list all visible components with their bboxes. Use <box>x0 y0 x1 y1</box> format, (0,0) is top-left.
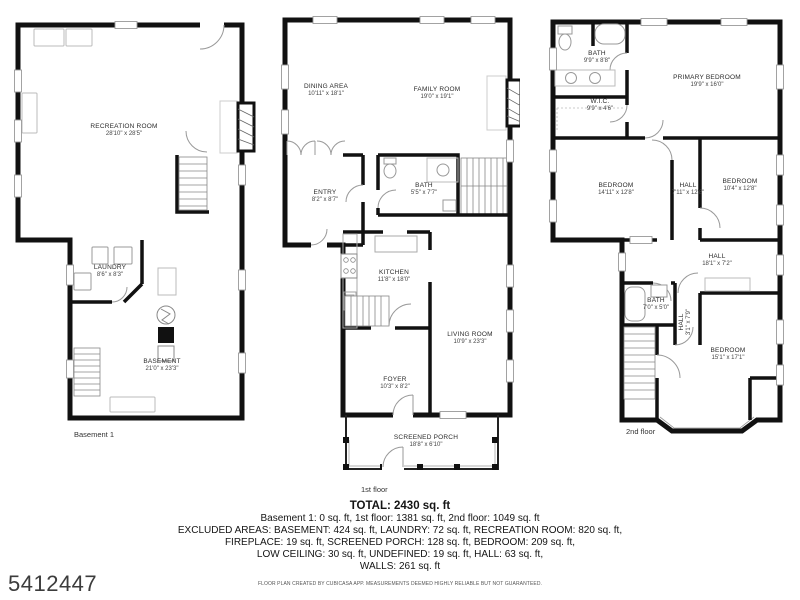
door-gap <box>200 20 224 30</box>
room-label-bedroom-left: BEDROOM 14'11" x 12'8" <box>598 182 634 198</box>
room-dims: 18'1" x 7'2" <box>702 261 732 269</box>
room-name: BEDROOM <box>711 347 746 355</box>
room-dims: 15'1" x 17'1" <box>711 355 746 363</box>
room-dims: 21'0" x 23'3" <box>143 366 180 374</box>
room-dims: 28'10" x 28'5" <box>90 131 157 139</box>
room-label-family-room: FAMILY ROOM 19'0" x 19'1" <box>414 86 461 102</box>
bathtub-icon <box>595 24 625 44</box>
room-label-entry: ENTRY 8'2" x 8'7" <box>312 189 338 205</box>
room-name: FOYER <box>380 376 410 384</box>
room-dims: 10'9" x 23'3" <box>447 339 493 347</box>
room-dims: 10'3" x 8'2" <box>380 384 410 392</box>
room-name: FAMILY ROOM <box>414 86 461 94</box>
room-name: LAUNDRY <box>94 264 126 272</box>
basement-floorplan <box>10 15 260 445</box>
room-label-bedroom-bottom: BEDROOM 15'1" x 17'1" <box>711 347 746 363</box>
second-floor-outer-walls <box>553 22 780 431</box>
room-name: KITCHEN <box>378 269 410 277</box>
room-name: SCREENED PORCH <box>394 434 458 442</box>
basement-outer-walls <box>18 25 242 418</box>
room-label-primary-bedroom: PRIMARY BEDROOM 19'9" x 16'0" <box>673 74 741 90</box>
room-label-bath-second: BATH 9'9" x 8'8" <box>584 50 610 66</box>
room-dims: 8'6" x 8'3" <box>94 272 126 280</box>
room-dims: 9'9" x 4'6" <box>587 106 613 114</box>
floorplan-page: RECREATION ROOM 28'10" x 28'5" LAUNDRY 8… <box>0 0 800 600</box>
summary-line: FIREPLACE: 19 sq. ft, SCREENED PORCH: 12… <box>0 537 800 549</box>
room-name: BEDROOM <box>723 178 758 186</box>
room-name: HALL <box>702 253 732 261</box>
floor-label-second: 2nd floor <box>626 427 655 436</box>
room-label-laundry: LAUNDRY 8'6" x 8'3" <box>94 264 126 280</box>
summary-line: WALLS: 261 sq. ft <box>0 561 800 573</box>
stove-icon <box>341 254 357 278</box>
room-name: BASEMENT <box>143 358 180 366</box>
room-name: LIVING ROOM <box>447 331 493 339</box>
room-name: BATH <box>411 182 437 190</box>
room-label-dining-area: DINING AREA 10'11" x 18'1" <box>304 83 348 99</box>
room-name: DINING AREA <box>304 83 348 91</box>
room-name: PRIMARY BEDROOM <box>673 74 741 82</box>
room-name: RECREATION ROOM <box>90 123 157 131</box>
room-label-recreation-room: RECREATION ROOM 28'10" x 28'5" <box>90 123 157 139</box>
toilet-icon <box>558 26 572 50</box>
stairs-icon <box>458 158 510 215</box>
room-dims: 10'11" x 18'1" <box>304 91 348 99</box>
room-dims: 19'9" x 16'0" <box>673 82 741 90</box>
room-name: BATH <box>643 297 669 305</box>
room-label-hall-mid: HALL 7'11" x 12'8" <box>672 182 704 198</box>
room-dims: 7'0" x 5'0" <box>643 305 669 313</box>
room-label-basement: BASEMENT 21'0" x 23'3" <box>143 358 180 374</box>
room-label-living-room: LIVING ROOM 10'9" x 23'3" <box>447 331 493 347</box>
room-name: ENTRY <box>312 189 338 197</box>
room-label-kitchen: KITCHEN 11'8" x 18'0" <box>378 269 410 285</box>
room-label-bedroom-right: BEDROOM 10'4" x 12'8" <box>723 178 758 194</box>
area-summary: TOTAL: 2430 sq. ft Basement 1: 0 sq. ft,… <box>0 500 800 573</box>
room-dims: 3'1" x 7'9" <box>686 309 694 335</box>
room-dims: 5'5" x 7'7" <box>411 190 437 198</box>
room-name: HALL <box>672 182 704 190</box>
room-label-hall-upper: HALL 18'1" x 7'2" <box>702 253 732 269</box>
room-dims: 8'2" x 8'7" <box>312 197 338 205</box>
room-name: W.I.C. <box>587 98 613 106</box>
room-label-foyer: FOYER 10'3" x 8'2" <box>380 376 410 392</box>
summary-line: EXCLUDED AREAS: BASEMENT: 424 sq. ft, LA… <box>0 525 800 537</box>
room-label-wic: W.I.C. 9'9" x 4'6" <box>587 98 613 114</box>
room-dims: 7'11" x 12'8" <box>672 190 704 198</box>
room-label-hall-small: HALL 3'1" x 7'9" <box>678 309 694 335</box>
room-label-screened-porch: SCREENED PORCH 18'8" x 6'10" <box>394 434 458 450</box>
room-dims: 9'9" x 8'8" <box>584 58 610 66</box>
floor-label-basement: Basement 1 <box>74 430 114 439</box>
room-name: BEDROOM <box>598 182 634 190</box>
summary-line: LOW CEILING: 30 sq. ft, UNDEFINED: 19 sq… <box>0 549 800 561</box>
room-dims: 10'4" x 12'8" <box>723 186 758 194</box>
room-dims: 11'8" x 18'0" <box>378 277 410 285</box>
room-label-bath-small: BATH 7'0" x 5'0" <box>643 297 669 313</box>
room-name: BATH <box>584 50 610 58</box>
summary-line: Basement 1: 0 sq. ft, 1st floor: 1381 sq… <box>0 513 800 525</box>
second-floor-floorplan <box>545 10 795 435</box>
room-dims: 14'11" x 12'8" <box>598 190 634 198</box>
furnace-icon <box>157 306 175 361</box>
room-name: HALL <box>678 309 686 335</box>
room-dims: 18'8" x 6'10" <box>394 442 458 450</box>
stairs-icon <box>624 327 655 399</box>
door-gap <box>393 410 413 420</box>
first-floor-outer-walls <box>285 20 510 415</box>
toilet-icon <box>384 158 396 178</box>
summary-total: TOTAL: 2430 sq. ft <box>0 500 800 513</box>
footer-note: FLOOR PLAN CREATED BY CUBICASA APP. MEAS… <box>0 581 800 587</box>
room-dims: 19'0" x 19'1" <box>414 94 461 102</box>
stairs-icon <box>74 348 100 396</box>
floor-label-first: 1st floor <box>361 485 388 494</box>
room-label-bath-first: BATH 5'5" x 7'7" <box>411 182 437 198</box>
